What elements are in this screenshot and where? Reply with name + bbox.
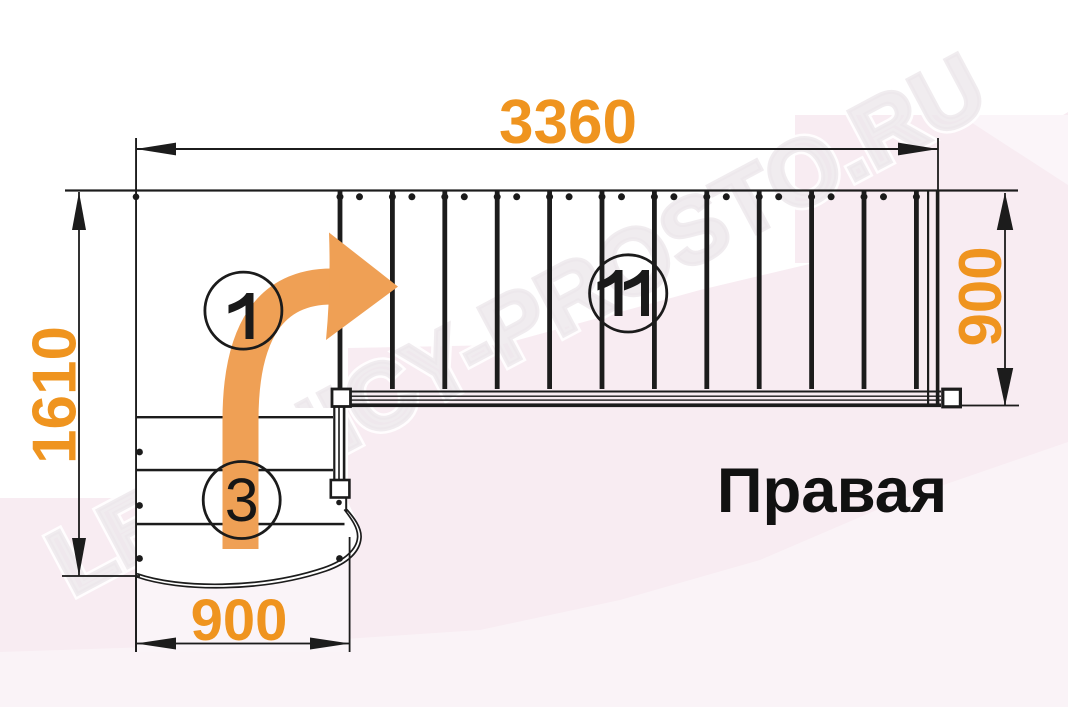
svg-text:Правая: Правая	[717, 456, 947, 526]
svg-text:900: 900	[947, 246, 1014, 346]
svg-text:3360: 3360	[499, 88, 637, 157]
svg-text:1610: 1610	[21, 326, 90, 464]
svg-text:900: 900	[191, 588, 288, 653]
svg-text:3: 3	[225, 466, 259, 534]
